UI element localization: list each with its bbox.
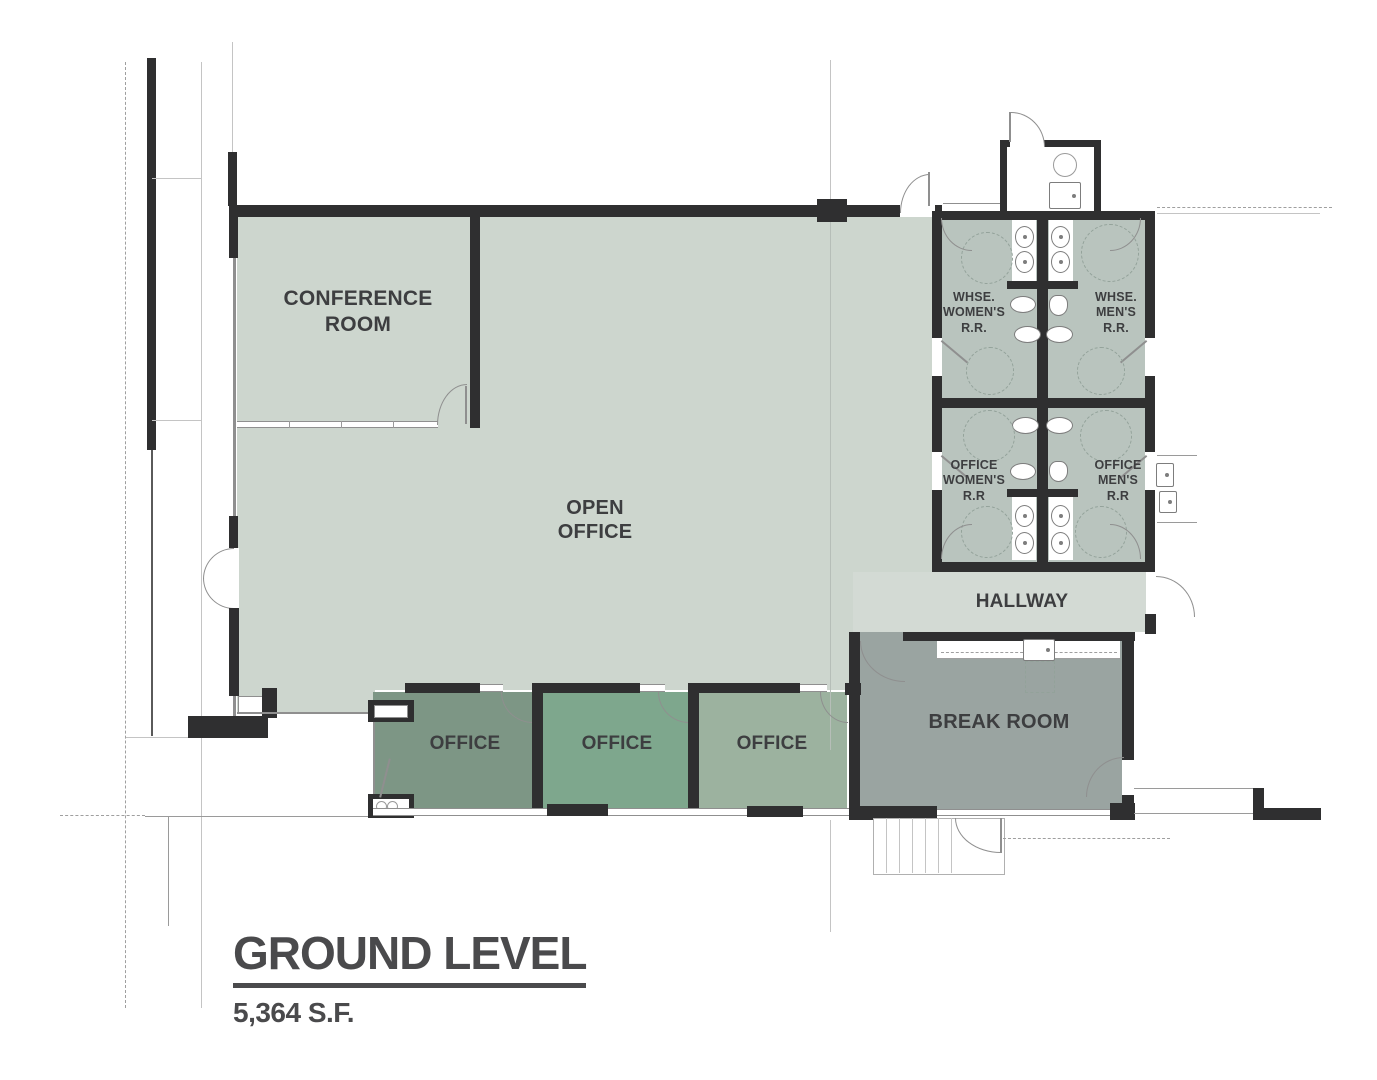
office-3-corner-wall [845,683,861,695]
context-line-vertical [201,62,202,1008]
title-block: GROUND LEVEL 5,364 S.F. [233,930,586,1029]
stair-tread [938,818,939,873]
whse-mens-door-opening [1145,338,1155,376]
stair-tread [899,818,900,873]
office-2-north-window [640,684,665,692]
toilet-icon [1046,417,1073,434]
plan-title: GROUND LEVEL [233,930,586,988]
sink-icon [1015,226,1034,248]
context-line-right-2 [1134,813,1253,814]
context-dashed-line-bottom-right [1003,838,1170,839]
fountain-line [1157,455,1197,456]
appliance-outline [1025,661,1055,693]
office-mens-rr-label: OFFICE MEN'S R.R [1073,452,1163,510]
context-line-right-1 [1134,788,1258,789]
hallway-exit-door-arc [1156,576,1195,617]
stair-tread [912,818,913,873]
office-divider-wall-2 [688,683,699,816]
break-room-north-wall [903,632,1135,641]
exterior-wall-west-mid [229,516,238,548]
office-1-label: OFFICE [405,728,525,760]
office-1-corner-window [374,705,408,718]
grid-line-through-open-office [830,222,831,750]
context-tick [152,420,202,421]
stair-tread [925,818,926,873]
offices-south-threshold [747,806,803,817]
wall-stub-above-building [228,152,237,206]
sink-icon [1051,532,1070,554]
exterior-wall-west-top [229,216,238,258]
grid-line-center-top [830,60,831,205]
stair-door-leaf [1000,818,1002,853]
break-room-south-window [937,809,1112,816]
existing-wall-segment [147,58,156,450]
restroom-west-wall [932,216,942,572]
site-boundary-dashed-line [125,62,126,1008]
office-3-north-window [800,684,827,692]
exterior-wall-step-southwest [188,716,268,738]
hallway-label: HALLWAY [947,586,1097,618]
sink-icon [1051,251,1070,273]
urinal-icon [1049,295,1068,316]
restroom-mid-wall [932,398,1155,408]
restroom-center-wall [1037,216,1048,572]
context-tick [152,178,202,179]
office-2-north-wall [543,683,640,693]
mop-sink-icon [1049,182,1081,209]
site-wall-corner-horizontal [1253,808,1321,820]
clearance-circle [966,347,1014,395]
office-3-north-wall [699,683,800,693]
grid-line-center-bottom [830,820,831,932]
toilet-icon [1012,417,1039,434]
context-line-bottom-left [145,816,373,817]
office-1-west-edge [373,722,375,798]
office-2-label: OFFICE [557,728,677,760]
conference-glass-wall [237,421,438,428]
office-3-label: OFFICE [712,728,832,760]
offices-south-threshold [547,804,608,816]
existing-wall-thin [151,450,153,736]
mullion-tick [393,421,394,428]
office-divider-wall-1 [532,683,543,816]
plan-area: 5,364 S.F. [233,997,586,1029]
hallway-east-wall-stub [1145,614,1156,634]
context-dashed-line-left [60,815,145,816]
conference-east-wall [470,216,480,428]
closet-east-wall [1094,140,1101,213]
kitchen-sink-icon [1023,639,1055,661]
fountain-line [1157,522,1197,523]
conference-room-label: CONFERENCE ROOM [268,280,448,344]
closet-west-wall [1000,140,1007,213]
exterior-wall-west-bottom [229,608,239,696]
stair-tread [951,818,952,873]
sink-icon [1015,251,1034,273]
context-line-vertical-bottom [168,816,169,926]
mullion-tick [341,421,342,428]
clearance-circle [1077,347,1125,395]
whse-womens-rr-label: WHSE. WOMEN'S R.R. [929,284,1019,342]
water-heater-icon [1053,153,1077,177]
break-room-south-wall-east [1110,803,1135,820]
office-1-north-window [480,684,503,692]
restroom-south-wall [932,562,1155,572]
office-womens-rr-label: OFFICE WOMEN'S R.R [929,452,1019,510]
toilet-icon [1046,326,1073,343]
west-double-door-arc-lower [203,578,234,609]
whse-womens-door-opening [932,338,942,376]
restroom-east-wall [1145,216,1155,572]
open-office-label: OPEN OFFICE [515,488,675,552]
sink-icon [1015,532,1034,554]
break-room-east-wall [1122,632,1134,760]
context-line-top-right [1157,213,1320,214]
top-entry-door-arc [900,174,930,213]
mullion-tick [289,421,290,428]
whse-mens-rr-label: WHSE. MEN'S R.R. [1071,284,1161,342]
urinal-icon [1049,461,1068,482]
structural-column [817,199,847,222]
stair-tread [886,818,887,873]
context-dashed-line-top-right [1157,207,1332,208]
closet-door-arc [1011,112,1045,147]
west-double-door-arc-upper [203,548,234,579]
sink-icon [1051,226,1070,248]
break-room-west-wall [849,632,860,812]
office-1-north-wall [405,683,480,693]
break-room-label: BREAK ROOM [899,705,1099,739]
sink-icon [1051,505,1070,527]
floor-plan: CONFERENCE ROOM OPEN OFFICE WHSE. WOMEN'… [0,0,1377,1080]
